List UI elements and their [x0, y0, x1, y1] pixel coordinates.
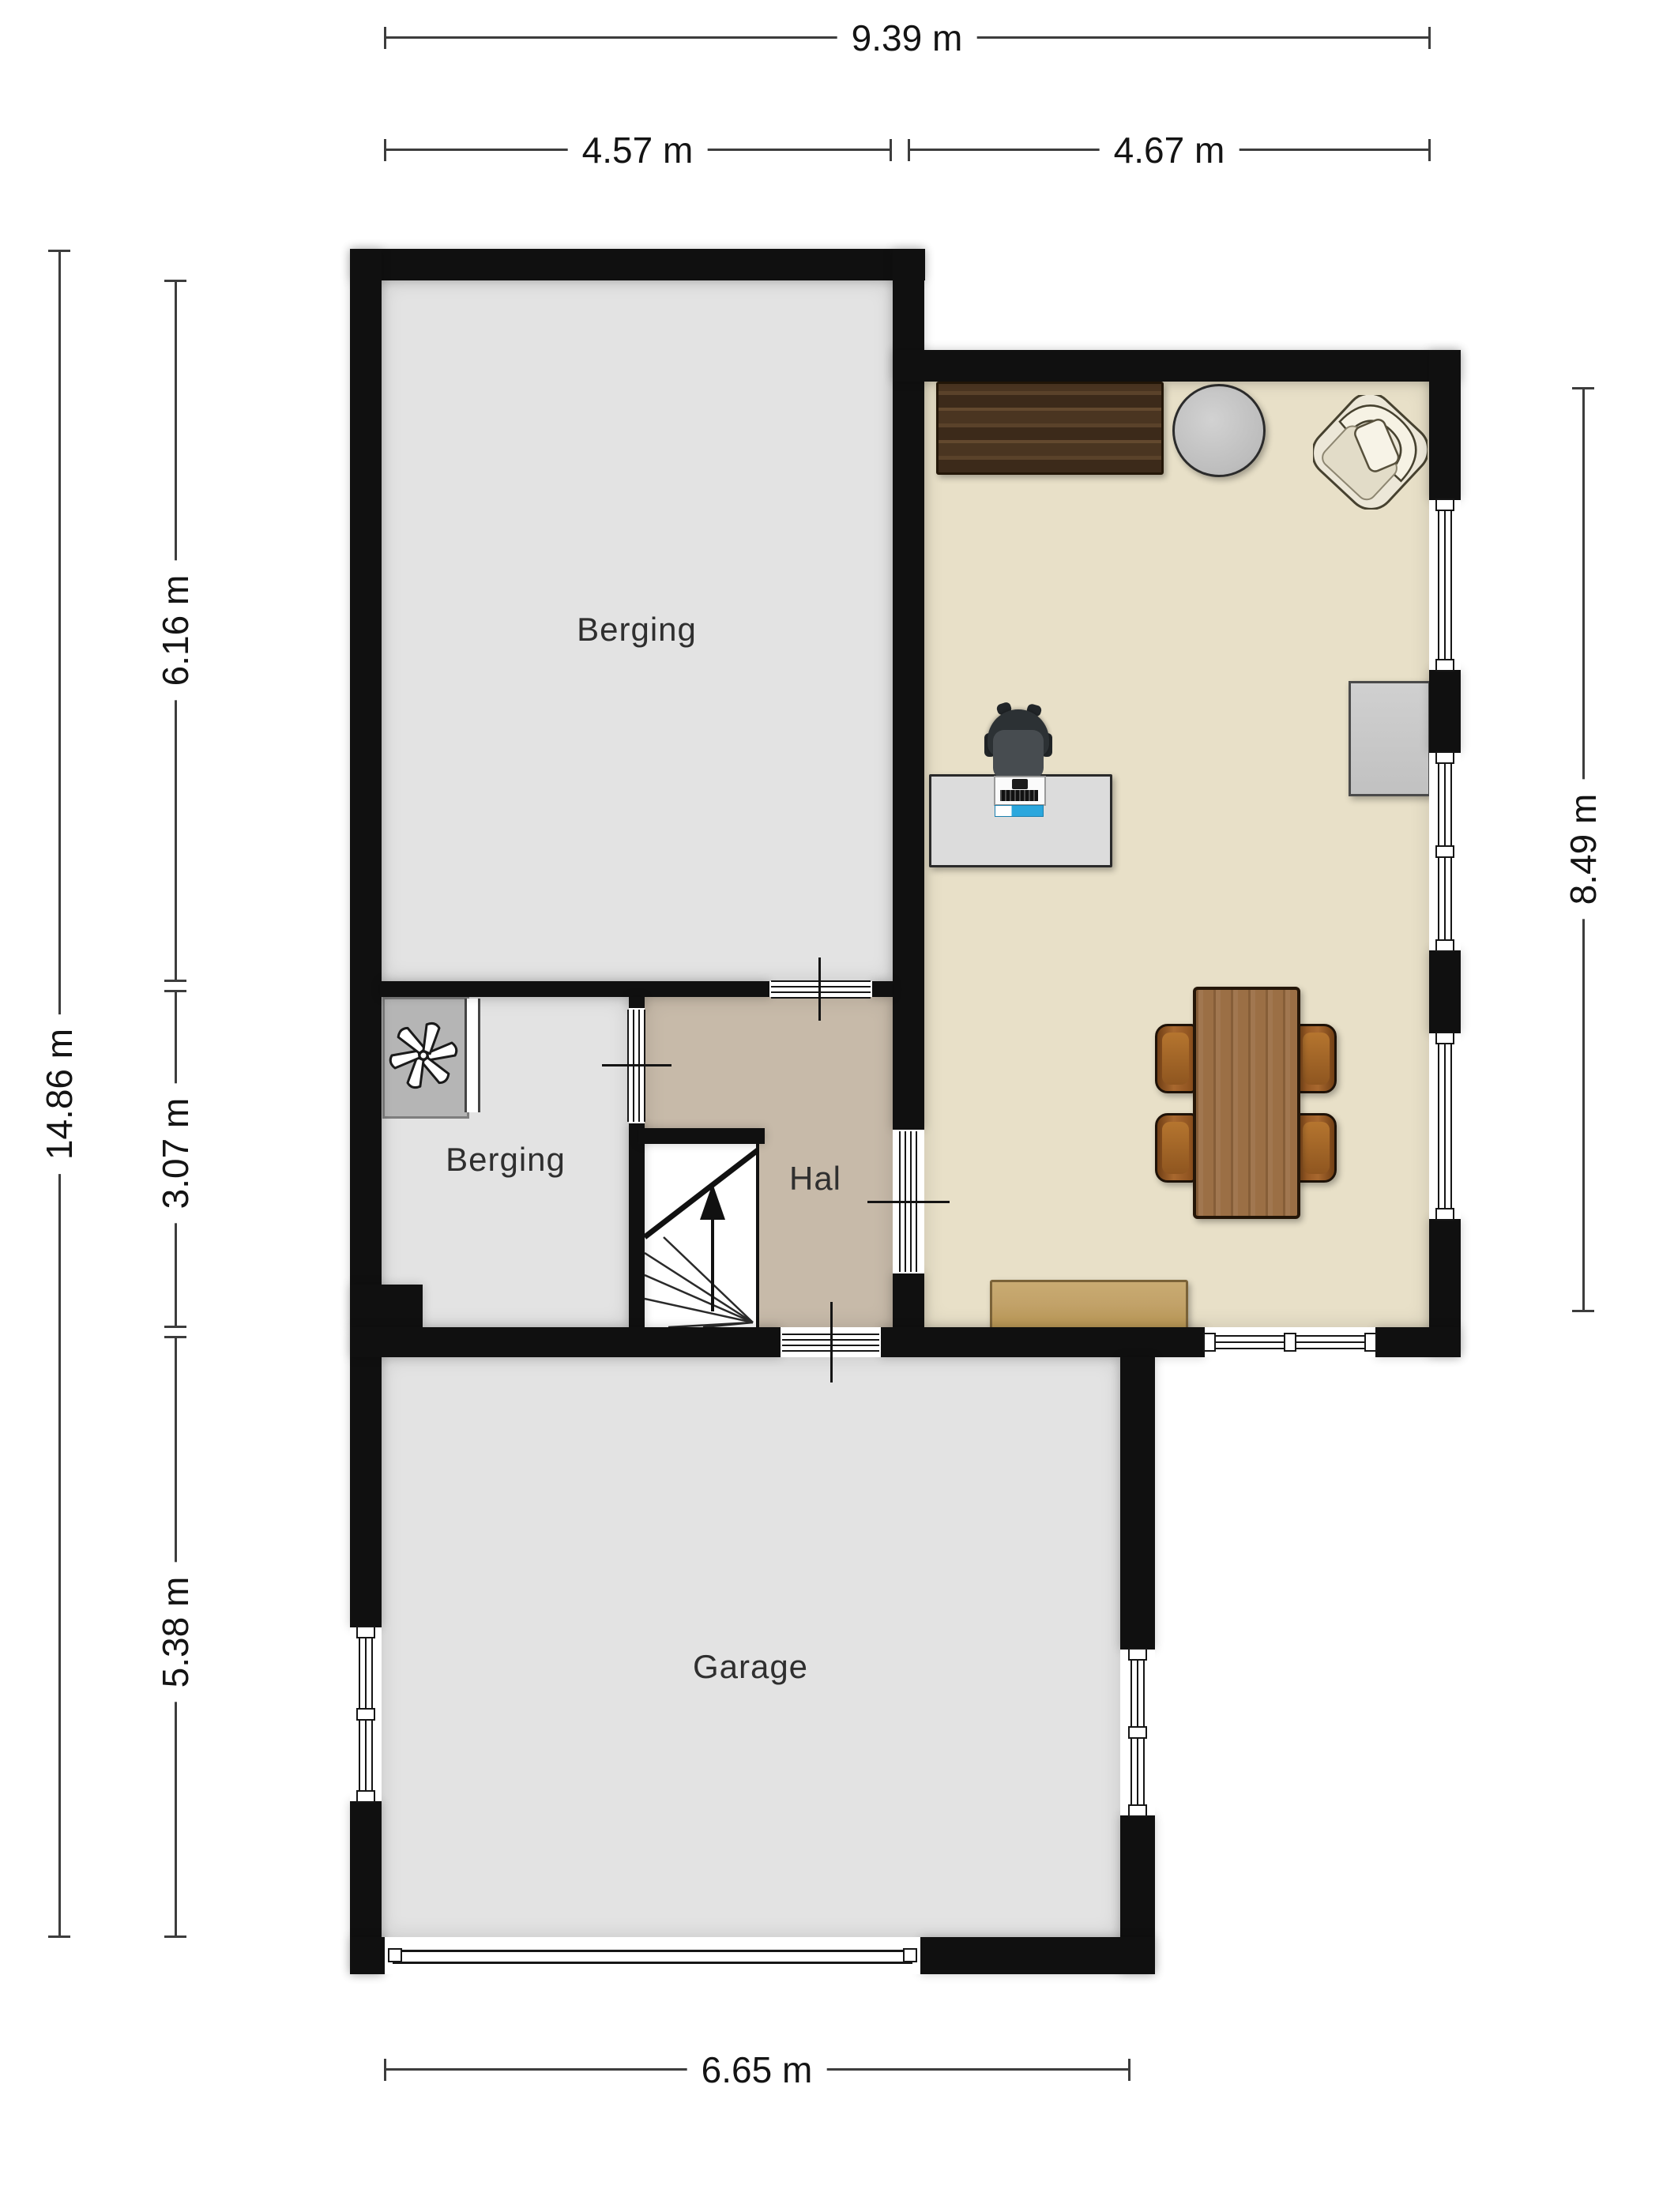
- round-side-table: [1172, 384, 1266, 477]
- wall-right-3: [1429, 950, 1461, 1033]
- room-label-garage: Garage: [693, 1650, 808, 1683]
- office-chair: [983, 706, 1054, 782]
- keyboard: [1000, 790, 1038, 801]
- wall-middle-band-b: [881, 1327, 1205, 1357]
- monitor: [1012, 779, 1028, 789]
- door-tick: [818, 957, 821, 1021]
- wall-divider-lower: [893, 1273, 924, 1327]
- door-storage-hall-top: [769, 981, 872, 997]
- window-living-right-3: [1429, 1033, 1461, 1219]
- dining-chair: [1155, 1113, 1196, 1183]
- wall-stair-stub: [638, 1128, 765, 1144]
- dim-label-top-total: 9.39 m: [837, 17, 977, 59]
- dim-label-left-bottom: 5.38 m: [154, 1563, 197, 1702]
- wall-storage-hall-b: [629, 1123, 645, 1327]
- wall-right-2: [1429, 670, 1461, 753]
- door-tick: [602, 1064, 671, 1066]
- dining-chair: [1296, 1113, 1337, 1183]
- dining-table: [1193, 987, 1300, 1219]
- tv-cabinet: [1349, 681, 1431, 796]
- sideboard-light-wood: [990, 1280, 1188, 1334]
- wall-garage-bottom-right: [920, 1937, 1155, 1974]
- wall-garage-bottom-left: [350, 1937, 385, 1974]
- dining-chair: [1155, 1024, 1196, 1093]
- window-living-right-2: [1429, 753, 1461, 950]
- floorplan-canvas: Berging Berging Hal Garage 9.39 m 4.57 m…: [0, 0, 1659, 2212]
- dim-label-right: 8.49 m: [1562, 780, 1604, 920]
- dim-label-left-middle: 3.07 m: [154, 1084, 197, 1224]
- room-label-storage-middle: Berging: [446, 1143, 566, 1176]
- dim-label-left-top: 6.16 m: [154, 561, 197, 701]
- wall-left-upper: [350, 249, 382, 1627]
- dining-chair: [1296, 1024, 1337, 1093]
- door-tick: [830, 1302, 833, 1382]
- dim-label-top-right: 4.67 m: [1100, 129, 1240, 171]
- wall-storage-top-bottom-b: [872, 981, 893, 997]
- wall-middle-band-a: [350, 1327, 781, 1357]
- dim-label-top-left: 4.57 m: [568, 129, 708, 171]
- wall-left-pier: [350, 1285, 423, 1327]
- wall-storage-hall-a: [629, 997, 645, 1008]
- dim-label-bottom: 6.65 m: [687, 2048, 827, 2091]
- wall-middle-band-c: [1375, 1327, 1461, 1357]
- sideboard-dark-wood: [936, 382, 1164, 475]
- fan-icon: [387, 1005, 460, 1106]
- window-garage-left: [350, 1627, 382, 1801]
- armchair: [1313, 395, 1428, 510]
- wall-storage-top-bottom-a: [380, 981, 769, 997]
- wall-top: [350, 249, 925, 280]
- wall-garage-right-a: [1120, 1357, 1155, 1650]
- wall-living-top: [893, 350, 1461, 382]
- wall-right-1: [1429, 350, 1461, 500]
- window-living-right-1: [1429, 500, 1461, 670]
- staircase: [645, 1144, 759, 1327]
- window-living-bottom: [1205, 1327, 1375, 1357]
- garage-door: [385, 1937, 920, 1974]
- room-label-storage-top: Berging: [577, 613, 697, 646]
- room-label-hall: Hal: [789, 1162, 841, 1195]
- door-tick: [867, 1201, 950, 1203]
- laptop: [995, 805, 1044, 817]
- ventilation-unit-panel: [465, 999, 480, 1112]
- room-floor-garage: [382, 1357, 1120, 1937]
- window-garage-right: [1120, 1650, 1155, 1815]
- dim-label-left-total: 14.86 m: [38, 1014, 81, 1174]
